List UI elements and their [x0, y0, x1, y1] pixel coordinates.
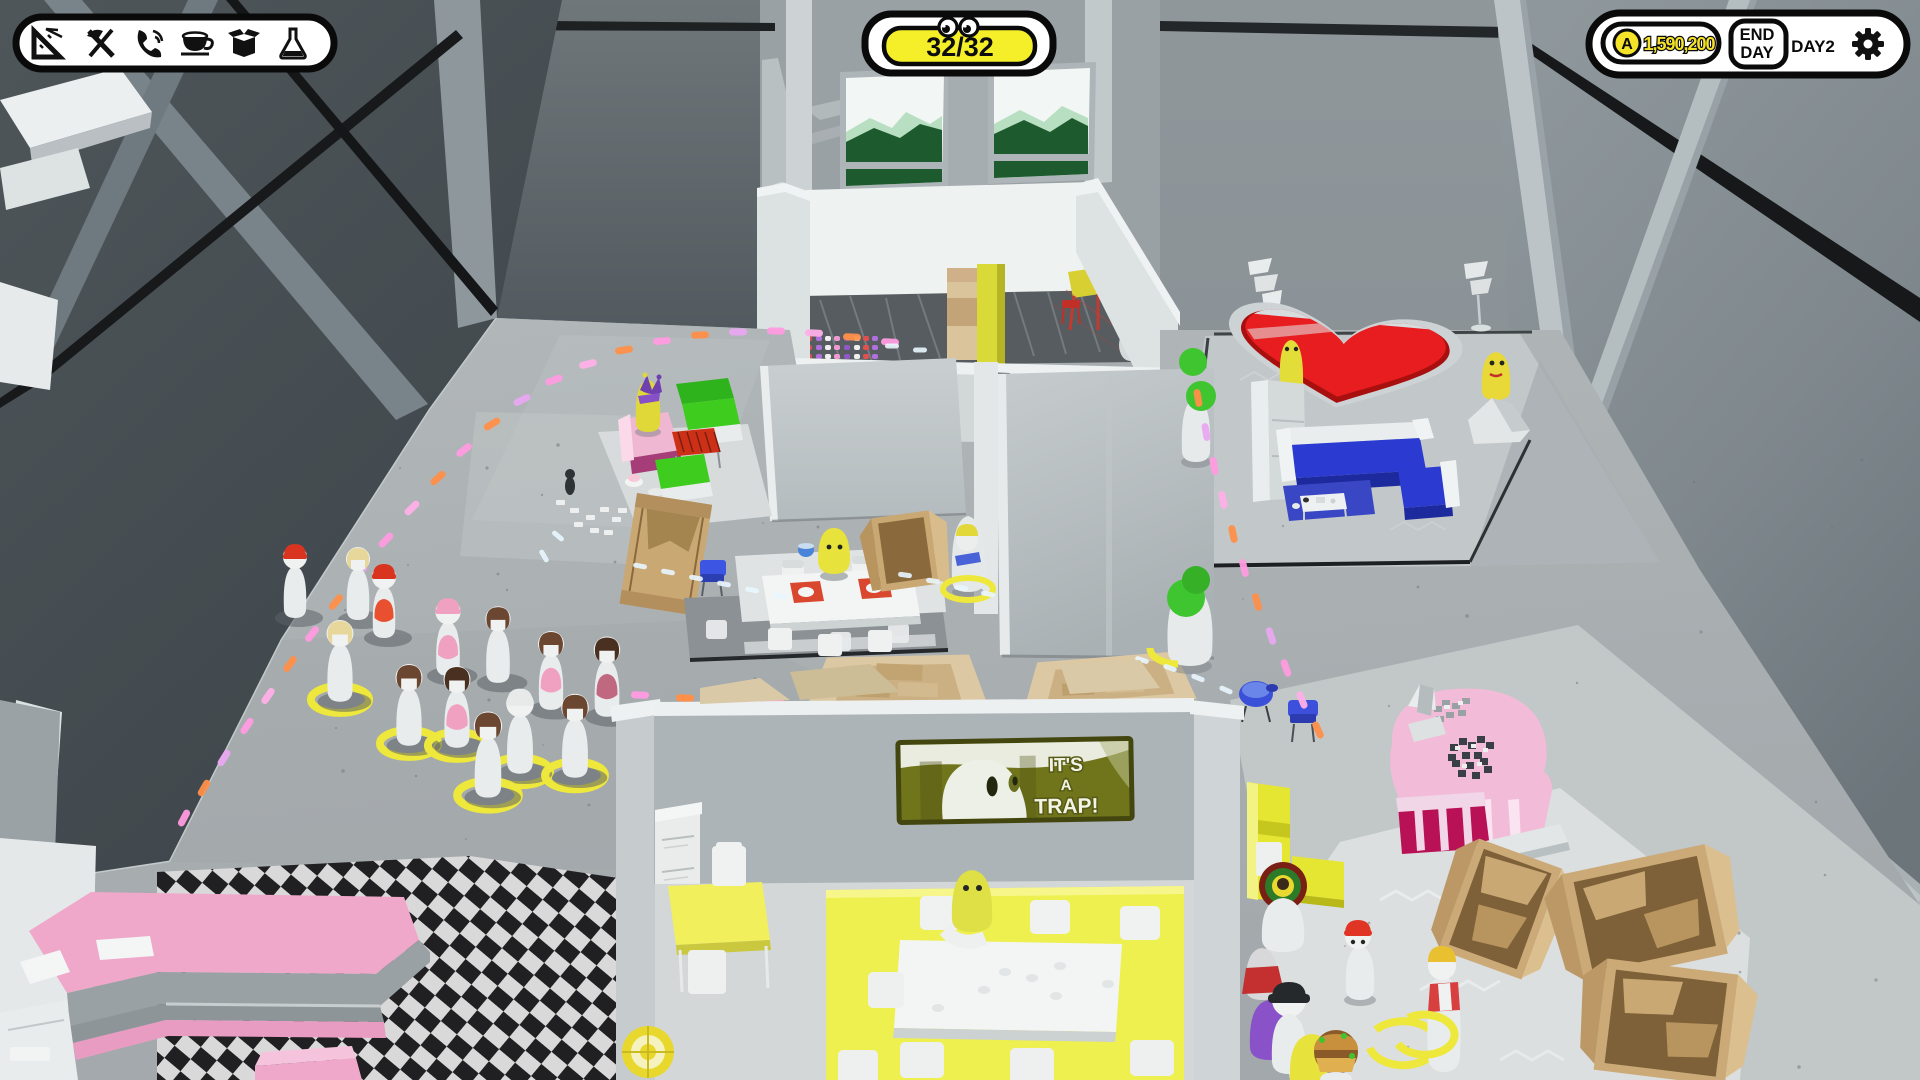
svg-text:A: A	[1621, 36, 1633, 53]
svg-text:1,590,200: 1,590,200	[1643, 34, 1715, 54]
svg-text:END: END	[1740, 26, 1775, 44]
svg-text:32/32: 32/32	[926, 32, 994, 62]
svg-text:A: A	[1061, 777, 1072, 794]
svg-text:TRAP!: TRAP!	[1034, 795, 1099, 819]
svg-text:IT'S: IT'S	[1049, 755, 1083, 777]
svg-text:DAY: DAY	[1740, 44, 1773, 62]
svg-text:DAY2: DAY2	[1791, 37, 1835, 56]
